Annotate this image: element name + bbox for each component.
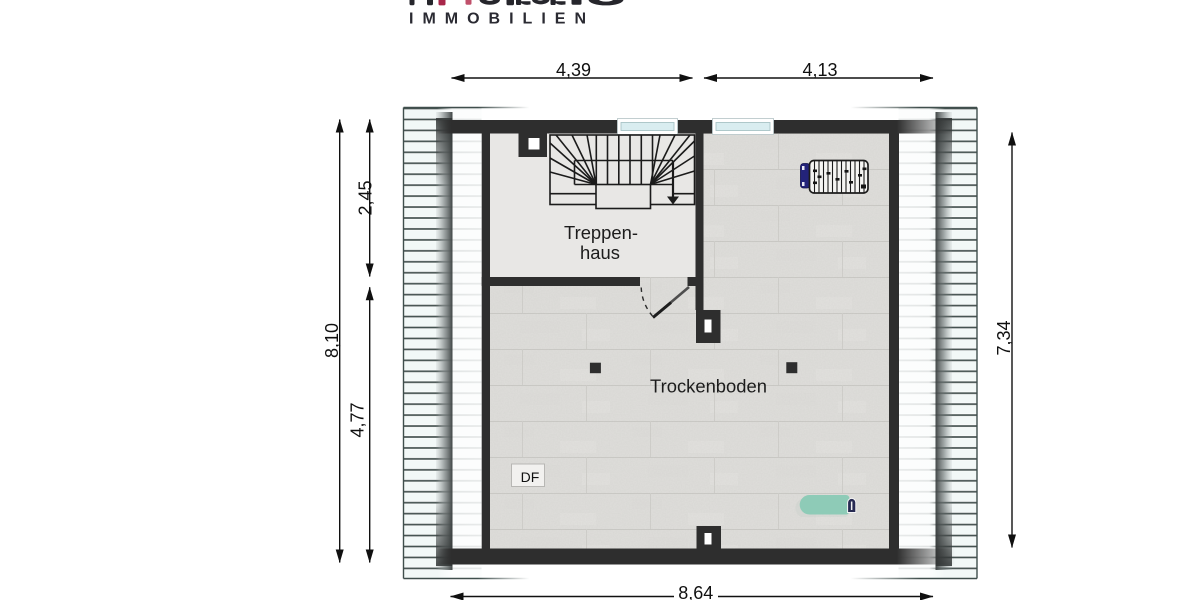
svg-text:4,13: 4,13 [802, 60, 837, 80]
svg-text:2,45: 2,45 [356, 180, 376, 215]
svg-text:7,34: 7,34 [994, 320, 1014, 355]
svg-text:Treppen-: Treppen- [564, 222, 638, 243]
svg-text:IMMOBILIEN: IMMOBILIEN [409, 11, 595, 28]
svg-text:8,64: 8,64 [678, 583, 713, 600]
svg-text:haus: haus [580, 242, 620, 263]
svg-text:Trockenboden: Trockenboden [650, 376, 767, 397]
svg-text:DF: DF [521, 469, 540, 485]
svg-text:4,77: 4,77 [348, 402, 368, 437]
svg-text:8,10: 8,10 [322, 323, 342, 358]
svg-text:4,39: 4,39 [556, 60, 591, 80]
